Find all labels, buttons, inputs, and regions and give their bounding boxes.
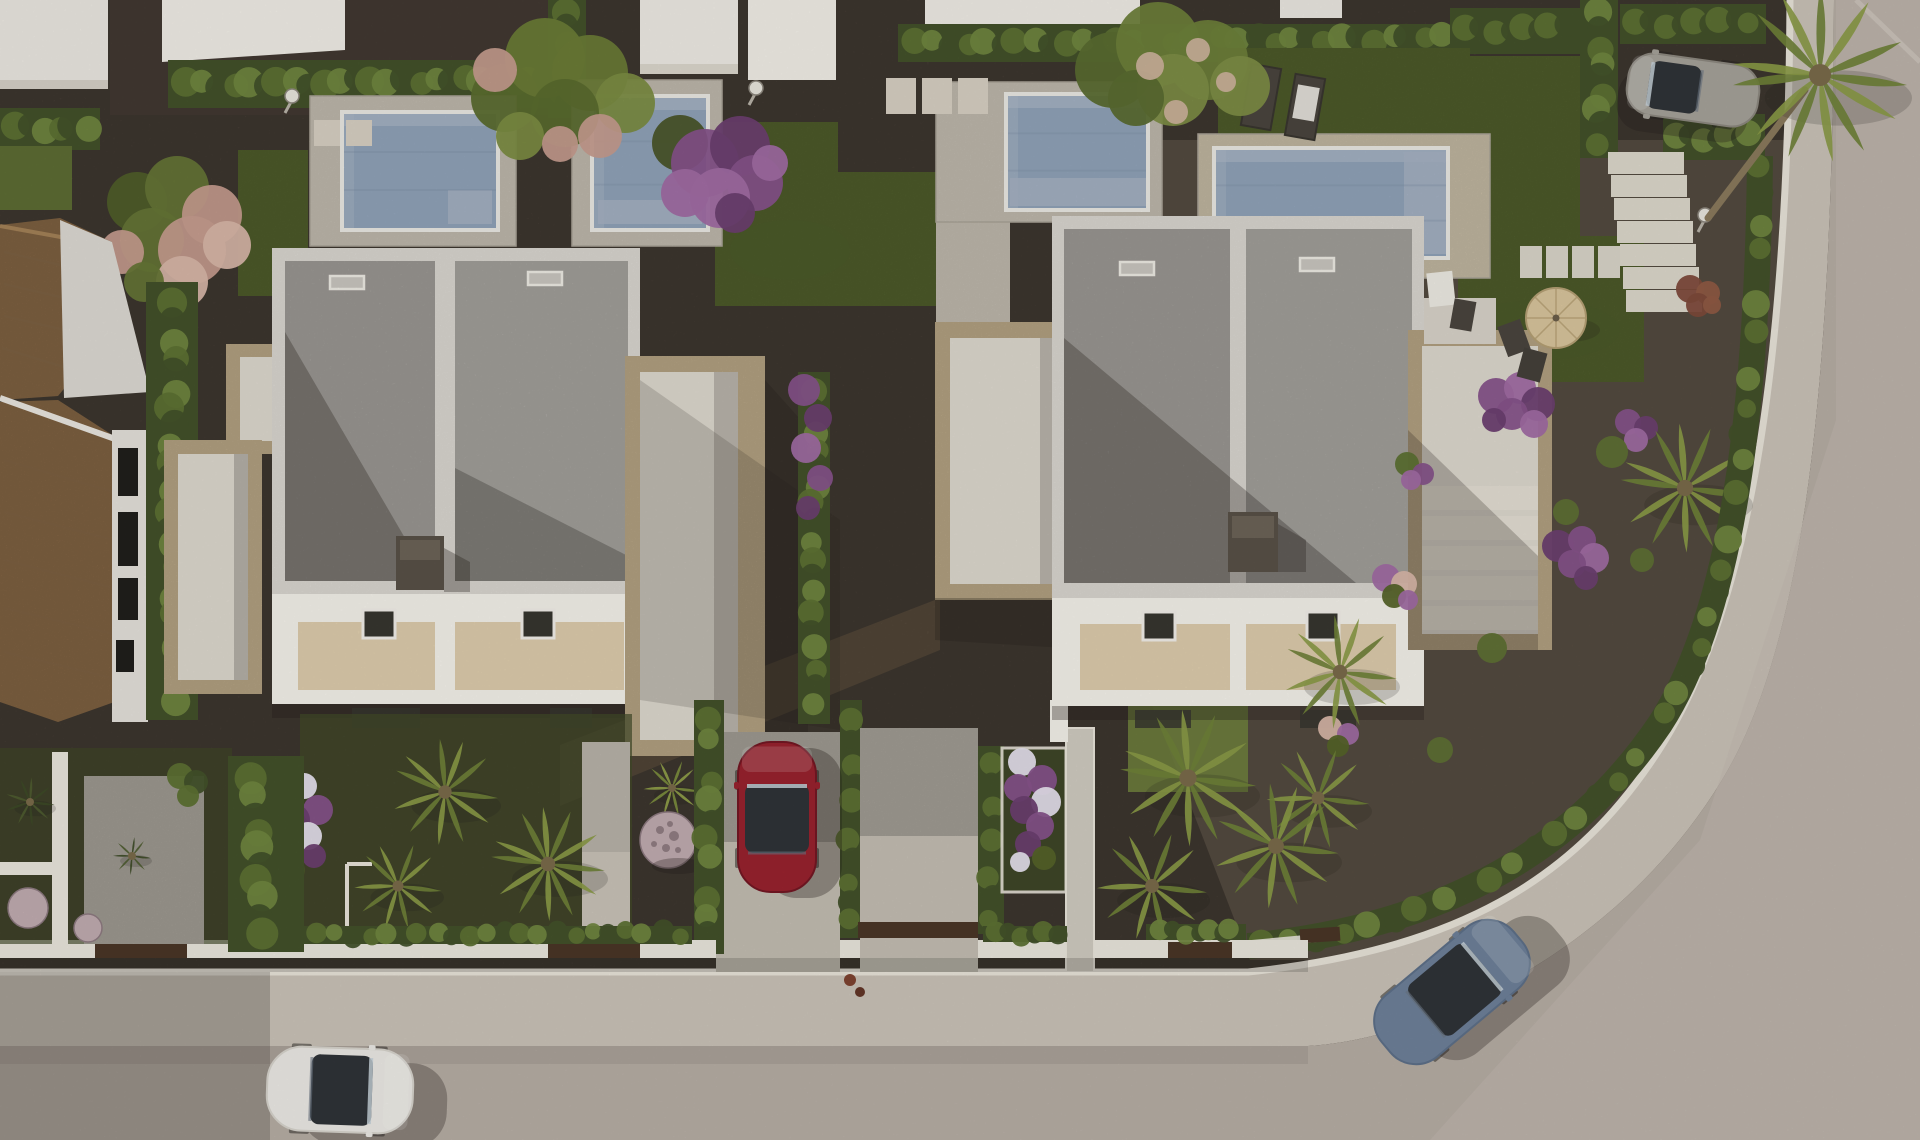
film-grain-overlay — [0, 0, 1920, 1140]
scene-aerial-villas-render — [0, 0, 1920, 1140]
aerial-render-viewport — [0, 0, 1920, 1140]
